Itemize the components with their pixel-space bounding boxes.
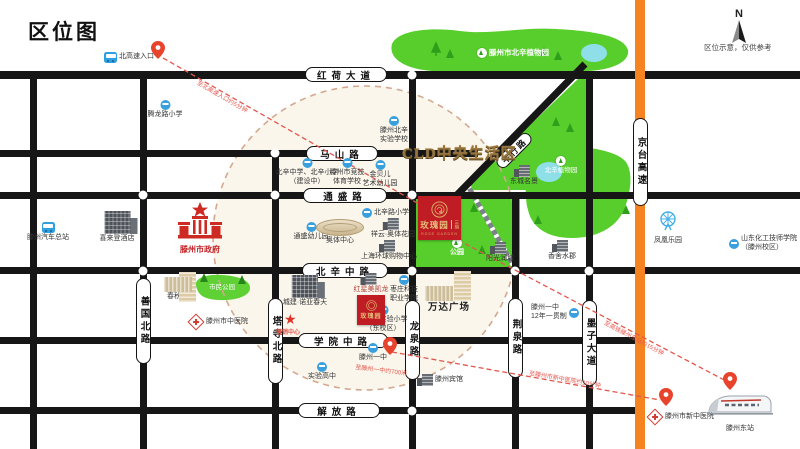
landmark-new-tcm-hospital: 滕州市新中医院 — [647, 409, 714, 425]
map-pin-icon — [151, 41, 165, 59]
road-tongsheng — [0, 192, 800, 199]
landmark-east-botanical-garden: 北辛植物园 — [545, 156, 578, 175]
intersection-dot — [271, 191, 280, 200]
bus-icon — [42, 222, 55, 233]
landmark-dongcheng-mingjing: 东城名景 — [510, 165, 538, 187]
landmark-shandong-chemical-college: 山东化工技师学院 （滕州校区） — [729, 235, 797, 253]
project-rose-garden-main: 玫瑰园 三期 ROSE GARDEN — [418, 196, 461, 240]
landmark-phoenix-amusement-park: 凤凰乐园 — [654, 211, 682, 246]
landmark-hongxing-meikailong: 红星美凯龙 — [354, 273, 389, 295]
project-name-en: ROSE GARDEN — [421, 232, 458, 236]
building-icon — [366, 273, 377, 285]
landmark-beixin-road-primary: 北辛路小学 — [362, 208, 409, 218]
landmark-tenglong-road-primary: 腾龙路小学 — [148, 100, 183, 120]
landmark-chunqiu-plaza: 春秋广场 — [164, 272, 198, 302]
plaza-buildings-icon — [164, 272, 198, 292]
road-label-shanguo-north: 善国北路 — [136, 278, 151, 364]
landmark-zaozhuang-vocational-college: 枣庄科技 职业学院 — [390, 275, 418, 304]
project-name: 玫瑰园 — [420, 219, 449, 231]
landmark-jinbeier-kindergarten: 金贝儿 艺术幼儿园 — [363, 160, 398, 189]
school-icon — [160, 100, 170, 110]
marketing-center-star-icon: ★ — [284, 312, 297, 326]
lake-top — [581, 44, 607, 62]
building-icon — [519, 165, 530, 177]
school-icon — [729, 239, 739, 249]
school-icon — [317, 362, 327, 372]
landmark-xiangshe-shuijun: 香舍水郡 — [548, 240, 576, 262]
location-map: 红荷大道 马山路 通盛路 北辛中路 学院中路 解放路 善国北路 塔寺北路 龙泉路… — [0, 0, 800, 449]
map-disclaimer: 区位示意，仅供参考 — [704, 42, 772, 53]
hospital-icon — [188, 314, 205, 331]
landmark-tcm-hospital: 滕州市中医院 — [188, 314, 248, 330]
intersection-dot — [139, 191, 148, 200]
intersection-dot — [408, 191, 417, 200]
map-pin-icon — [659, 388, 673, 406]
building-icon — [557, 240, 568, 252]
intersection-dot — [408, 407, 417, 416]
government-building-icon — [178, 202, 222, 244]
landmark-olympic-center: 奥体中心 — [316, 219, 364, 246]
landmark-beixin-botanical-garden: 滕州市北辛植物园 — [477, 48, 549, 58]
compass-n-label: N — [728, 8, 750, 20]
school-icon — [342, 158, 352, 168]
landmark-chengjian-nuoya: 城建·诺亚春天 — [283, 275, 327, 308]
building-icon — [384, 240, 395, 252]
compass-needle-icon — [731, 20, 747, 44]
road-jingtai-highway — [635, 0, 645, 449]
road-longquan — [409, 75, 416, 449]
landmark-citizen-park: 市民公园 — [209, 284, 235, 292]
road-label-mozi-avenue: 墨子大道 — [582, 300, 597, 386]
building-icon — [495, 242, 506, 254]
park-icon — [477, 48, 487, 58]
road-beixin-middle — [0, 267, 800, 274]
school-icon — [302, 158, 312, 168]
landmark-xiangyun-aoti-garden: 祥云·奥体花园 — [371, 218, 415, 240]
building-icon — [292, 275, 318, 298]
road-label-honghe: 红荷大道 — [305, 67, 387, 82]
road-label-jingtai-highway: 京台高速 — [633, 118, 648, 206]
landmark-tengzhou-east-station: 滕州东站 — [707, 392, 773, 434]
landmark-bus-terminal: 滕州汽车总站 — [27, 222, 69, 243]
landmark-yizhong-12year: 滕州一中 12年一贯制 — [531, 304, 579, 322]
mall-buildings-icon — [425, 271, 473, 301]
building-icon — [388, 218, 399, 230]
marketing-center-label: 营销中心 — [276, 327, 300, 336]
road-shanguo-north — [140, 75, 147, 449]
school-icon — [362, 208, 372, 218]
building-icon — [422, 374, 433, 386]
hospital-icon — [647, 409, 664, 426]
road-label-jingquan: 荆泉路 — [508, 298, 523, 378]
landmark-park: 公园 — [450, 238, 464, 258]
school-icon — [569, 308, 579, 318]
school-icon — [375, 160, 385, 170]
bus-icon — [104, 52, 117, 63]
project-phase: 三期 — [451, 220, 459, 229]
project-rose-garden-south: 玫瑰园 — [357, 295, 385, 325]
stadium-icon — [316, 219, 364, 236]
landmark-beixin-experimental-school: 滕州北辛 实验学校 — [380, 116, 408, 145]
intersection-dot — [271, 149, 280, 158]
park-icon — [556, 156, 566, 166]
road-honghe-avenue — [0, 71, 800, 79]
school-icon — [399, 275, 409, 285]
road-label-tasi-north: 塔寺北路 — [268, 298, 283, 384]
landmark-sports-school: 滕州市竞技 体育学校 — [330, 158, 365, 187]
high-speed-train-icon — [707, 392, 773, 424]
map-pin-icon — [723, 372, 737, 390]
ferris-wheel-icon — [659, 211, 677, 236]
road-label-jiefang: 解放路 — [298, 403, 380, 418]
cld-badge: CLD中央生活区 — [402, 142, 517, 163]
landmark-tengzhou-hotel: 滕州宾馆 — [422, 374, 463, 386]
landmark-yangguang-runcheng: 阳光润城 — [486, 242, 514, 264]
intersection-dot — [585, 267, 594, 276]
school-icon — [306, 222, 316, 232]
landmark-wanda-plaza: 万达广场 — [425, 271, 473, 314]
landmark-city-government: 滕州市政府 — [178, 202, 222, 255]
project-name: 玫瑰园 — [360, 311, 381, 320]
intersection-dot — [408, 71, 417, 80]
landmark-shanghai-global-mall: 上海环球购物中心 — [361, 240, 417, 262]
map-pin-icon — [383, 337, 397, 355]
school-icon — [368, 343, 378, 353]
landmark-experimental-high: 实验高中 — [308, 362, 336, 382]
landmark-north-highway-entrance: 北高速入口 — [104, 52, 154, 63]
rose-logo-icon — [431, 201, 448, 218]
intersection-dot — [139, 267, 148, 276]
road-west-vertical — [30, 75, 37, 449]
school-icon — [389, 116, 399, 126]
landmark-xilaideng-hotel: 喜来登酒店 — [100, 211, 135, 244]
building-icon — [104, 211, 130, 234]
page-title: 区位图 — [28, 16, 100, 46]
intersection-dot — [511, 267, 520, 276]
road-mozi-avenue — [586, 75, 593, 449]
rose-logo-icon — [366, 300, 377, 311]
road-label-tongsheng: 通盛路 — [303, 188, 387, 203]
